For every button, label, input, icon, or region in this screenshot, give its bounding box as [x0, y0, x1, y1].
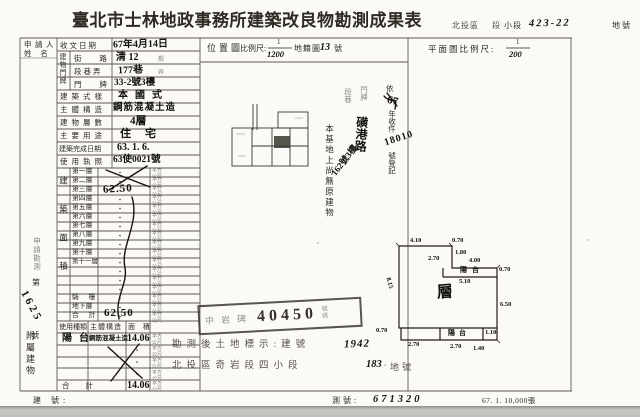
plan-scale-label: 平面圖比例尺:	[428, 45, 495, 54]
annex-total-value: 14.06	[127, 381, 150, 391]
annex-structure-value: 鋼筋混凝土造	[89, 336, 128, 343]
scanned-survey-form: 臺北市士林地政事務所建築改良物勘測成果表 北投區 段 小段 423-22 地號 …	[0, 0, 640, 417]
annex-col-area: 面 積	[128, 324, 153, 331]
street-value: 清 12	[116, 53, 139, 63]
floor-area-total-value: 62.50	[104, 308, 134, 319]
dim-left: 8.15	[384, 277, 393, 290]
dim-balcony-right: 0.70	[499, 267, 510, 274]
receipt-mid-label: 年收件	[388, 110, 396, 133]
survey-result-line2-unit: 地號	[390, 363, 414, 372]
receipt-year-handwritten: 67	[386, 95, 399, 108]
margin-note-no-prefix: 第	[32, 279, 40, 287]
floor-row-label-7: 第七層	[72, 223, 92, 230]
unit-label: 平方公尺	[152, 347, 164, 359]
lane-suffix: 弄	[158, 70, 164, 76]
footer-building-no-label: 建 號:	[33, 397, 69, 405]
header-parcel-number: 423-22	[529, 19, 571, 30]
unit-label: 平方公尺	[152, 359, 164, 371]
annex-total-label: 合 計	[62, 382, 100, 390]
margin-note-caption: 申請勘測	[33, 237, 41, 271]
street-label: 街 路	[74, 55, 115, 63]
survey-result-line1-number: 1942	[344, 339, 370, 351]
floor-row-label-11: 第十一層	[72, 259, 98, 266]
dim-notch-right: 1.80	[455, 250, 466, 257]
receipt-stamp: 中岩碑 40450 號碼	[197, 297, 362, 336]
survey-result-line2: 北投區奇岩段四小段	[172, 362, 303, 372]
floor-row-label-5: 第五層	[72, 205, 92, 212]
style-label: 建築式樣	[60, 93, 106, 101]
header-parcel-label: 地號	[612, 22, 632, 30]
dim-bottom-right: 1.40	[473, 346, 484, 353]
survey-result-line2-number: 183	[366, 360, 382, 371]
dim-balcony-bottom: 5.10	[459, 279, 470, 286]
style-value: 本國式	[118, 91, 169, 101]
annex-col-structure: 主體構造	[90, 324, 122, 331]
receive-date-value: 67年4月14日	[113, 40, 168, 51]
stamp-number: 40450	[257, 305, 318, 326]
receipt-col-section: 段巷	[344, 88, 352, 103]
floor-row-label-basement: 地下層	[72, 304, 92, 311]
unit-label: 平方公尺	[152, 313, 164, 325]
cadastral-sheet-number: 13	[320, 43, 330, 53]
cadastral-map-label: 地籍圖	[294, 45, 321, 53]
dim-bottom-step: 0.70	[376, 328, 387, 335]
location-map-scale-label: 比例尺:	[240, 45, 266, 53]
footer-survey-no-label: 測號:	[332, 397, 359, 405]
plan-balcony-top-label: 陽台	[460, 267, 484, 274]
floors-label: 建物層數	[60, 119, 106, 127]
receipt-col-plate: 門牌	[360, 86, 368, 101]
receive-date-label: 收文日期	[60, 42, 98, 50]
plan-scale-numerator: 1	[516, 39, 520, 46]
dim-bottom-left: 2.70	[408, 342, 419, 349]
form-title: 臺北市士林地政事務所建築改良物勘測成果表	[72, 12, 422, 29]
header-subsection-label: 小段	[504, 22, 522, 30]
annex-col-use: 使用種類	[59, 324, 87, 331]
floor-row-label-total: 合 計	[72, 313, 99, 320]
footer-print-info: 67. 1. 10,000張	[482, 397, 536, 405]
unit-label: 平方公尺	[152, 335, 164, 347]
plan-scale-denominator: 200	[509, 50, 522, 59]
license-value: 63使0021號	[113, 156, 161, 166]
plan-center-mark: 層	[436, 284, 453, 301]
plate-label: 門 牌	[74, 81, 115, 89]
floors-value: 4層	[130, 116, 147, 127]
completed-label: 建築完成日期	[59, 146, 101, 153]
survey-result-line1: 勘測後土地標示:建號	[172, 341, 310, 351]
floor-row-label-3: 第三層	[72, 187, 92, 194]
dim-right: 6.50	[500, 302, 511, 309]
margin-note-number: 1625	[18, 289, 44, 324]
annex-area-value: 14.06	[127, 334, 150, 344]
scan-edge-band	[0, 406, 640, 417]
footer-survey-no-value: 671320	[373, 395, 423, 406]
stamp-right-glyphs: 號碼	[322, 307, 333, 321]
dim-top: 4.10	[410, 238, 421, 245]
header-district: 北投區	[452, 22, 479, 30]
floor-row-label-arcade: 騎 樓	[72, 295, 99, 302]
location-map-scale-denominator: 1200	[267, 50, 284, 59]
cadastral-sheet-unit: 號	[334, 45, 342, 53]
street-suffix: 鄰	[158, 57, 164, 63]
header-section-label: 段	[492, 22, 500, 30]
lane-value: 177巷	[118, 66, 143, 77]
floor-row-label-4: 第四層	[72, 196, 92, 203]
dim-balcony-top: 4.00	[469, 258, 480, 265]
license-label: 使用執照	[60, 158, 106, 166]
floor-area-group-label: 建築面積	[59, 176, 68, 290]
address-group-label: 建物門牌	[59, 53, 66, 85]
unit-label: 平方公尺	[152, 371, 164, 383]
dim-right-step: 1.10	[485, 330, 496, 337]
stamp-left-glyphs: 中岩碑	[205, 311, 254, 326]
applicant-label-line1: 申請人	[24, 41, 57, 49]
usage-label: 主要用途	[60, 132, 106, 140]
plate-value: 33-2號3樓	[114, 79, 155, 89]
completed-value: 63. 1. 6.	[117, 143, 150, 153]
plan-balcony-bottom-label: 陽台	[448, 330, 470, 337]
receipt-prefix: 依	[386, 85, 394, 93]
dim-bottom-mid: 2.70	[450, 344, 461, 351]
location-map-scale-numerator: 1	[277, 39, 281, 46]
floor-row-label-6: 第六層	[72, 214, 92, 221]
location-map-label: 位置圖	[207, 44, 243, 53]
structure-value: 鋼筋混凝土造	[113, 104, 176, 114]
unit-label: 平方公尺	[152, 382, 164, 394]
dim-notch-left: 2.70	[428, 256, 439, 263]
structure-label: 主體構造	[60, 106, 106, 114]
lane-label: 段巷弄	[74, 68, 103, 76]
floor-row-label-8: 第八層	[72, 232, 92, 239]
receipt-suffix-label: 號登記	[388, 152, 396, 175]
floor-row-label-2: 第二層	[72, 178, 92, 185]
applicant-label-line2: 姓 名	[24, 50, 51, 58]
usage-value: 住宅	[120, 129, 170, 140]
document-paper: 臺北市士林地政事務所建築改良物勘測成果表 北投區 段 小段 423-22 地號 …	[0, 0, 640, 406]
floor-row-label-10: 第十層	[72, 250, 92, 257]
margin-note-no-suffix: 號	[31, 332, 39, 340]
dim-top-step: 0.70	[452, 238, 463, 245]
floor-row-label-9: 第九層	[72, 241, 92, 248]
third-floor-area-value: 62.50	[103, 183, 133, 196]
floor-row-label-1: 第一層	[72, 169, 92, 176]
